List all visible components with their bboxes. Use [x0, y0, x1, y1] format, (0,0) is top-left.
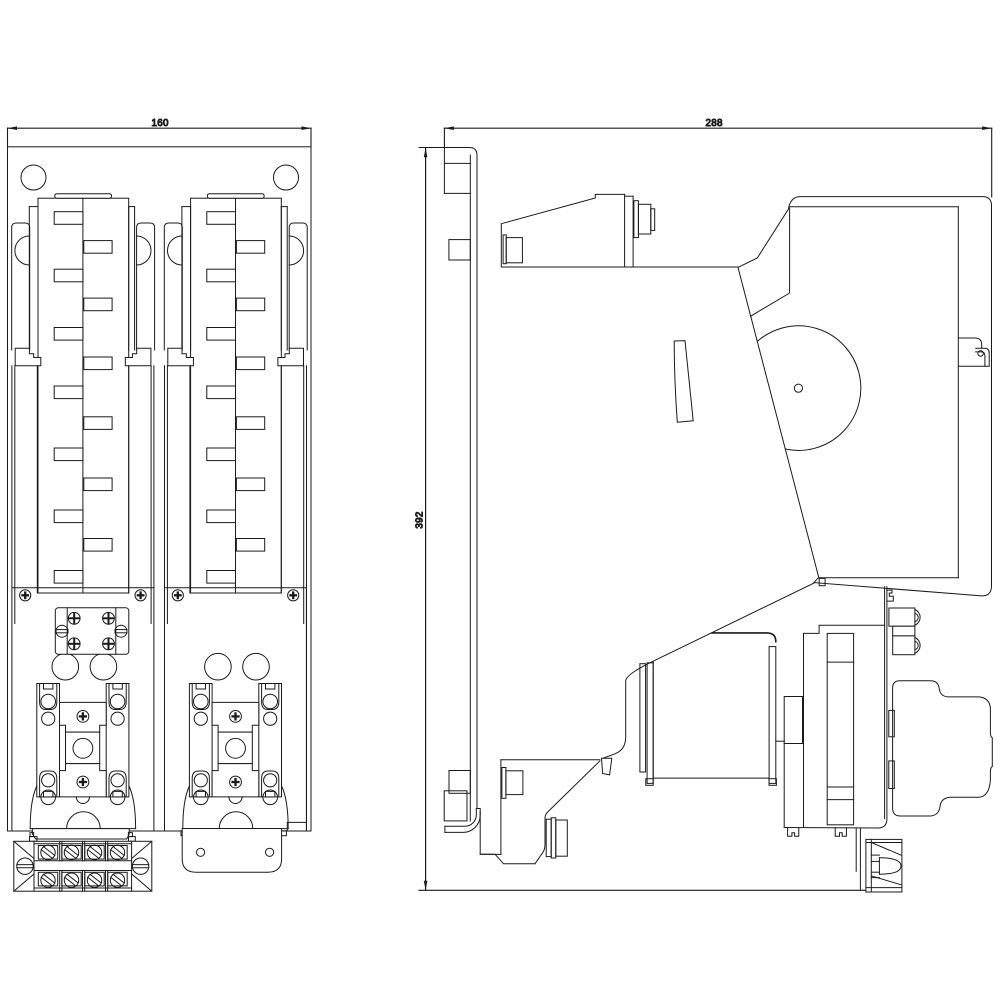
svg-text:160: 160: [152, 118, 169, 129]
svg-text:392: 392: [415, 511, 426, 528]
svg-text:288: 288: [706, 118, 723, 129]
